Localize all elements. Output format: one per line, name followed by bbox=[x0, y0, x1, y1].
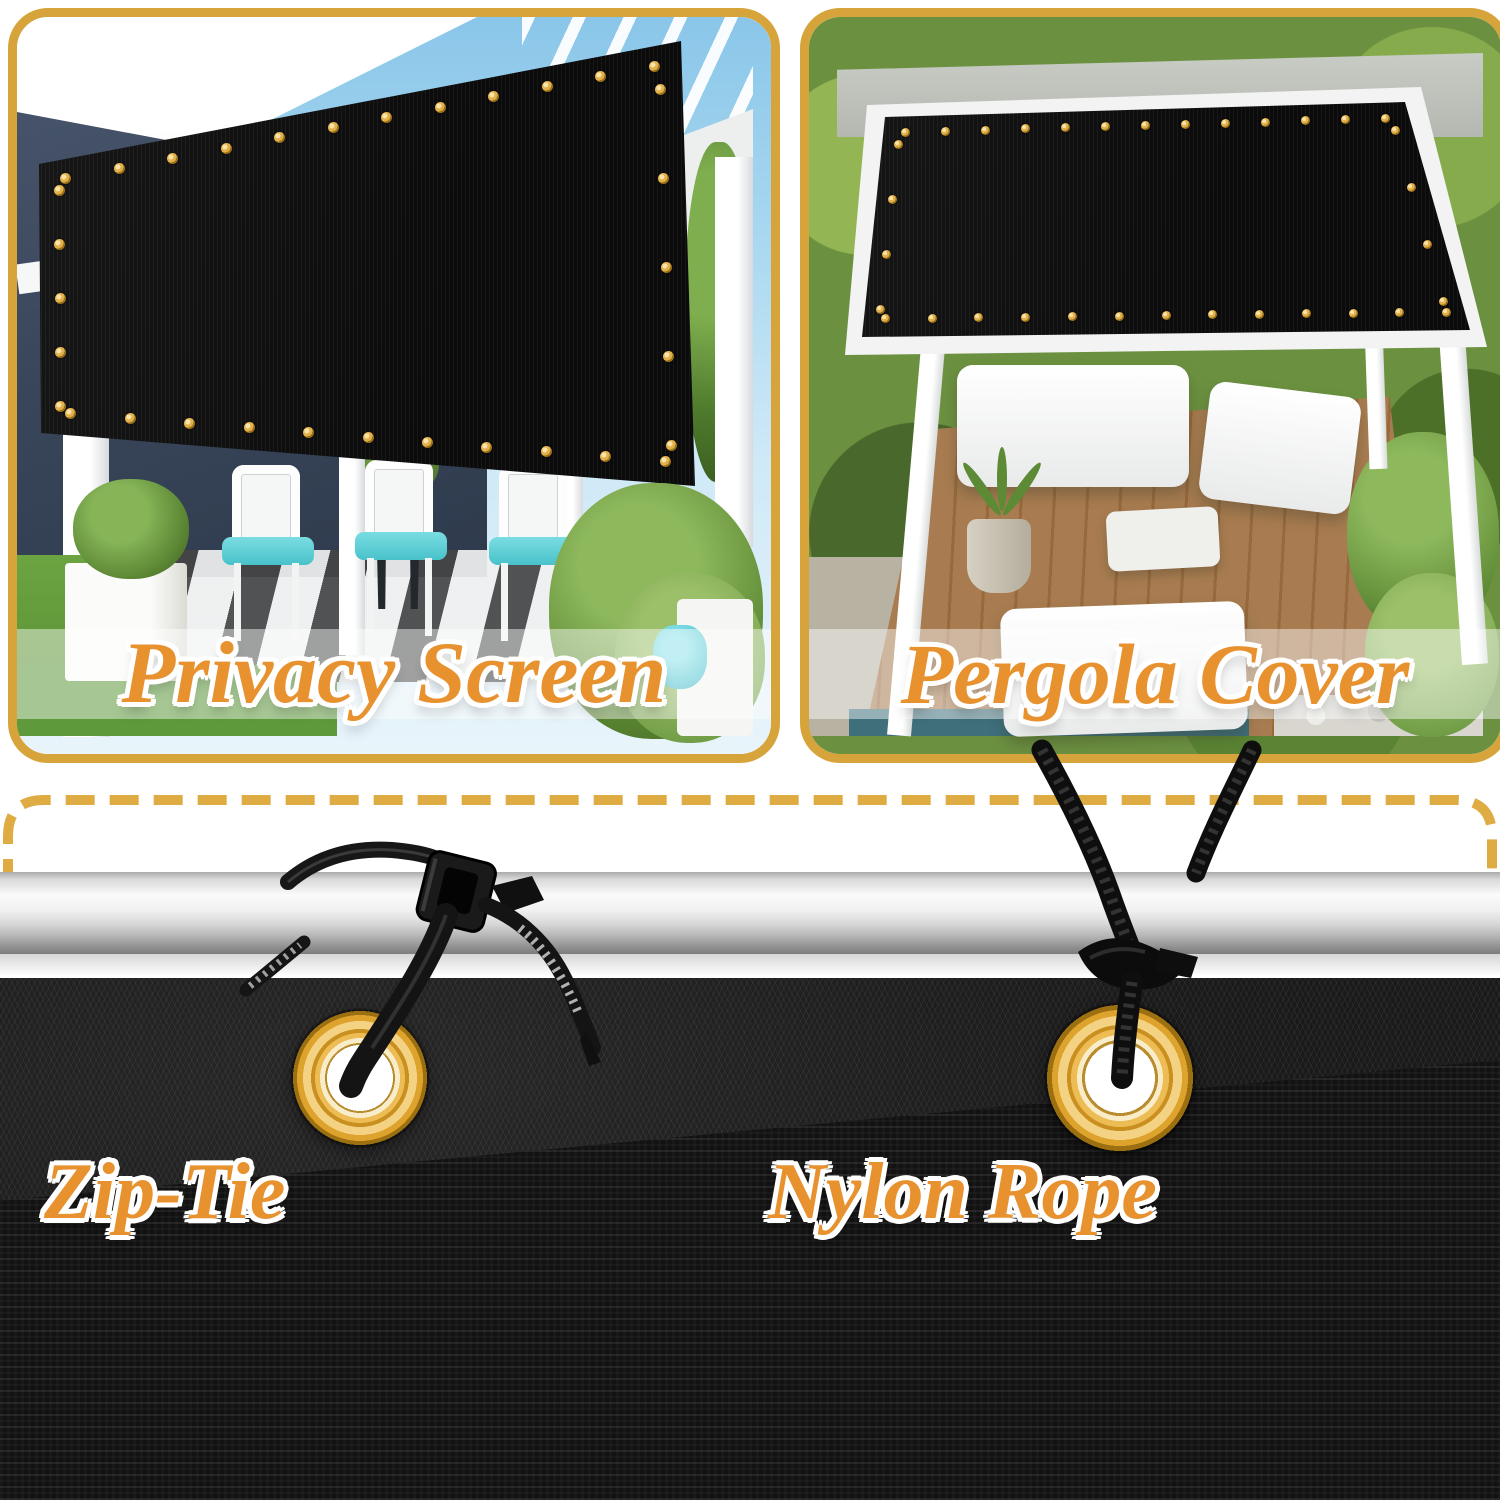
grommet-dot bbox=[1068, 312, 1077, 321]
grommet-dot bbox=[244, 422, 255, 433]
grommet-dot bbox=[1381, 114, 1390, 123]
pergola-scene: Pergola Cover bbox=[809, 17, 1500, 754]
grommet-dot bbox=[1391, 126, 1400, 135]
grommet-dot bbox=[55, 293, 66, 304]
brass-grommet bbox=[290, 1008, 430, 1148]
grommet-dot bbox=[941, 127, 950, 136]
grommet-dot bbox=[435, 102, 446, 113]
grommet-dot bbox=[303, 427, 314, 438]
grommet-dot bbox=[114, 163, 125, 174]
grommet-dot bbox=[1302, 309, 1311, 318]
grommet-dot bbox=[881, 314, 890, 323]
grommet-dot bbox=[1395, 308, 1404, 317]
grommet-dot bbox=[55, 401, 66, 412]
grommet-dot bbox=[600, 451, 611, 462]
grommet-dot bbox=[981, 126, 990, 135]
grommet-dot bbox=[328, 122, 339, 133]
grommet-dot bbox=[1255, 310, 1264, 319]
grommet-dot bbox=[1407, 183, 1416, 192]
grommet-dot bbox=[488, 91, 499, 102]
zip-tie-label: Zip-Tie bbox=[44, 1152, 285, 1232]
pole-shadow bbox=[0, 954, 1500, 976]
grommet-dot bbox=[1439, 297, 1448, 306]
grommet-dot bbox=[542, 81, 553, 92]
grommet-dot bbox=[221, 143, 232, 154]
privacy-screen-caption: Privacy Screen bbox=[122, 630, 667, 718]
grommet-dot bbox=[974, 313, 983, 322]
grommet-dot bbox=[54, 239, 65, 250]
grommet-dot bbox=[481, 442, 492, 453]
grommet-dot bbox=[363, 432, 374, 443]
grommet-dot bbox=[125, 413, 136, 424]
grommet-dot bbox=[888, 195, 897, 204]
grommet-dot bbox=[666, 440, 677, 451]
metal-pole bbox=[0, 872, 1500, 954]
privacy-scene: Privacy Screen bbox=[17, 17, 771, 754]
grommet-dot bbox=[655, 84, 666, 95]
caption-band: Privacy Screen bbox=[17, 629, 771, 719]
pergola-cover-caption: Pergola Cover bbox=[901, 630, 1410, 718]
grommet-dot bbox=[1208, 310, 1217, 319]
privacy-screen-photo-panel: Privacy Screen bbox=[8, 8, 780, 763]
grommet-dot bbox=[54, 185, 65, 196]
grommet-dot bbox=[1341, 115, 1350, 124]
grommet-dot bbox=[1162, 311, 1171, 320]
grommet-dot bbox=[65, 408, 76, 419]
pergola-cover-photo-panel: Pergola Cover bbox=[800, 8, 1500, 763]
grommet-dot bbox=[658, 173, 669, 184]
grommet-dot bbox=[928, 314, 937, 323]
grommet-dot bbox=[1101, 122, 1110, 131]
grommet-dot bbox=[595, 71, 606, 82]
grommet-dot bbox=[1423, 240, 1432, 249]
product-infographic: Privacy Screen bbox=[0, 0, 1500, 1500]
grommet-dot bbox=[901, 128, 910, 137]
grommet-dot bbox=[1115, 312, 1124, 321]
grommet-dot bbox=[882, 250, 891, 259]
grommet-dot bbox=[184, 418, 195, 429]
grommet-dot bbox=[649, 61, 660, 72]
grommet-dot bbox=[660, 456, 671, 467]
grommet-dot bbox=[661, 262, 672, 273]
grommet-dot bbox=[1141, 121, 1150, 130]
grommet-dot bbox=[1181, 120, 1190, 129]
grommet-dot bbox=[274, 132, 285, 143]
grommet-dot bbox=[60, 173, 71, 184]
grommet-dot bbox=[1021, 124, 1030, 133]
nylon-rope-label: Nylon Rope bbox=[768, 1152, 1157, 1232]
grommet-dot bbox=[381, 112, 392, 123]
grommet-dot bbox=[876, 305, 885, 314]
grommet-dot bbox=[55, 347, 66, 358]
grommet-dot bbox=[167, 153, 178, 164]
grommet-dot bbox=[663, 351, 674, 362]
grommet-dot bbox=[894, 140, 903, 149]
grommet-dot bbox=[1301, 116, 1310, 125]
grommet-dot bbox=[1349, 309, 1358, 318]
caption-band: Pergola Cover bbox=[809, 629, 1500, 719]
grommet-dot bbox=[1061, 123, 1070, 132]
grommet-dot bbox=[1221, 119, 1230, 128]
grommet-dot bbox=[541, 446, 552, 457]
grommet-dot bbox=[422, 437, 433, 448]
brass-grommet bbox=[1044, 1002, 1196, 1154]
grommet-dot bbox=[1021, 313, 1030, 322]
grommet-dot bbox=[1261, 118, 1270, 127]
grommet-dot bbox=[1442, 308, 1451, 317]
